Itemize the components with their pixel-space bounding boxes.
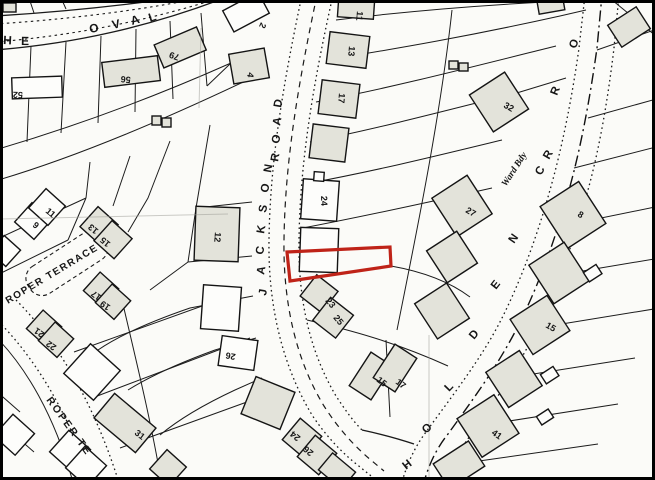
street-letter-cr-c: C <box>533 164 548 177</box>
street-letter-ro-o: O <box>567 38 581 50</box>
plot-number: 13 <box>346 46 357 57</box>
street-letter-holden-h: H <box>400 458 414 473</box>
street-letter-cr-r: R <box>541 148 556 162</box>
road-jackson <box>269 0 414 480</box>
street-letter-jackson-j: J <box>257 288 270 296</box>
ward-bdy-label: Ward Bdy <box>500 150 530 188</box>
plot-number: 26 <box>225 350 237 362</box>
plot-number: 56 <box>120 74 131 85</box>
street-letter-holden-n: N <box>507 232 522 246</box>
street-letter-road-o: O <box>270 134 283 145</box>
street-letter-jackson-k: K <box>255 224 268 235</box>
street-letter-jackson-n: N <box>262 163 275 173</box>
street-letter-jackson-s: S <box>257 204 270 214</box>
street-letter-oval-e: E <box>21 34 29 48</box>
street-letter-holden-o: O <box>420 421 435 436</box>
plot-number: 12 <box>212 232 223 243</box>
street-letter-oval-o: O <box>88 21 100 36</box>
street-letter-holden-d: D <box>467 328 482 342</box>
plot-number: 2 <box>257 21 268 30</box>
street-letter-oval-v: V <box>111 16 122 31</box>
plot-number: 11 <box>354 11 365 21</box>
street-letter-oval-h: H <box>3 33 12 47</box>
street-letter-road-d: D <box>272 98 285 108</box>
plot-number: 24 <box>319 196 329 206</box>
street-letter-holden-l: L <box>443 381 457 394</box>
street-letter-jackson-o: O <box>259 183 272 194</box>
plot-number: 52 <box>13 90 23 100</box>
street-letter-jackson-c: C <box>254 245 267 255</box>
street-letter-road-a: A <box>271 116 284 126</box>
street-letter-road-r: R <box>269 152 282 163</box>
map-canvas: HEOVALJACKSONROADHOLDENCRROWard BdyROPER… <box>0 0 655 480</box>
plot-number: 17 <box>336 93 347 104</box>
site-plan-map: HEOVALJACKSONROADHOLDENCRROWard BdyROPER… <box>0 0 655 480</box>
street-letter-ro-r: R <box>549 84 563 97</box>
street-letter-holden-e: E <box>489 278 503 292</box>
street-letter-jackson-a: A <box>255 265 268 275</box>
